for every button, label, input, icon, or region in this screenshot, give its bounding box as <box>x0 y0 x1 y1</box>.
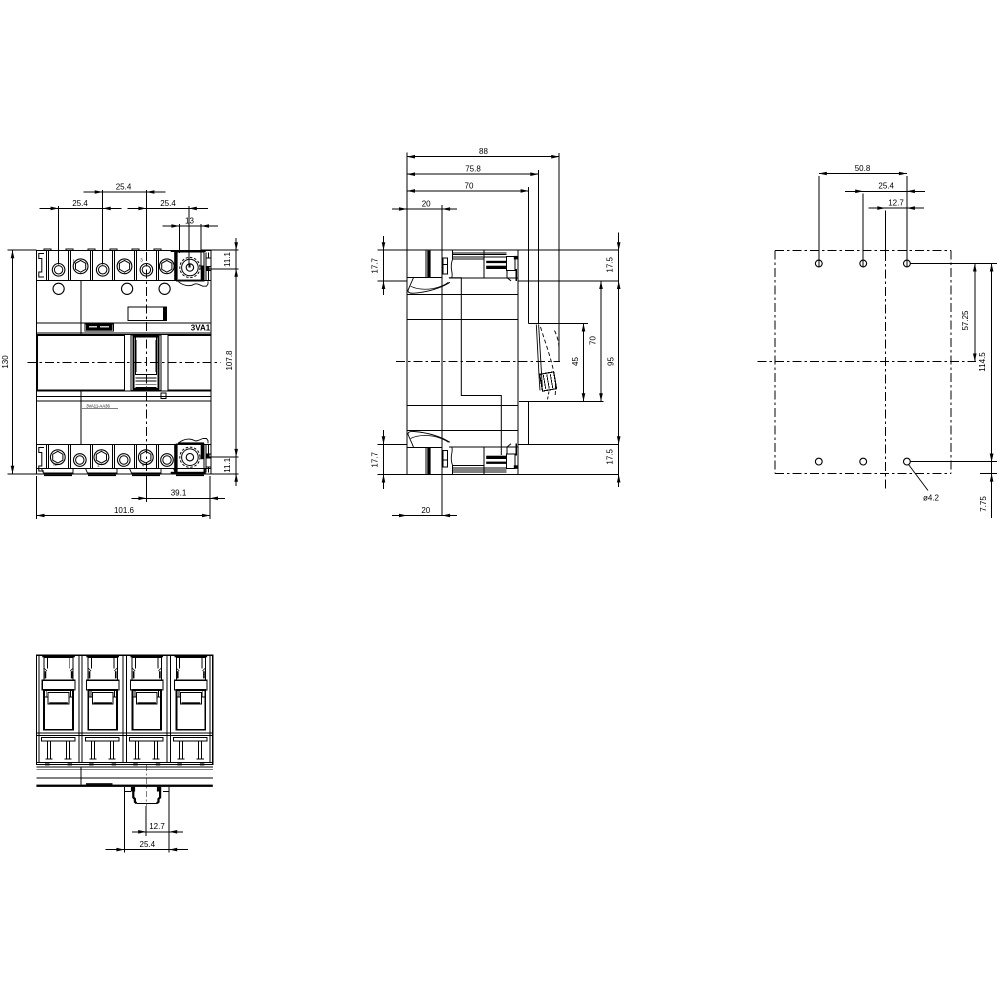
svg-text:13: 13 <box>185 216 194 225</box>
svg-text:130: 130 <box>1 355 10 369</box>
svg-text:25.4: 25.4 <box>160 199 176 208</box>
svg-text:39.1: 39.1 <box>171 489 187 498</box>
svg-text:45: 45 <box>571 357 580 366</box>
svg-text:70: 70 <box>465 181 474 190</box>
svg-text:11.1: 11.1 <box>223 457 232 473</box>
svg-text:17.5: 17.5 <box>606 256 615 272</box>
svg-text:75.8: 75.8 <box>465 165 481 174</box>
svg-text:20: 20 <box>422 199 431 208</box>
svg-text:70: 70 <box>588 336 597 345</box>
svg-text:3VA11-AA36: 3VA11-AA36 <box>86 403 110 408</box>
svg-text:25.4: 25.4 <box>878 182 894 191</box>
svg-text:17.7: 17.7 <box>370 257 379 273</box>
svg-text:50.8: 50.8 <box>855 164 871 173</box>
svg-text:17.7: 17.7 <box>370 451 379 467</box>
svg-text:7.75: 7.75 <box>979 496 988 512</box>
svg-text:3VA1: 3VA1 <box>191 324 211 333</box>
svg-text:57.25: 57.25 <box>961 310 970 331</box>
svg-text:20: 20 <box>421 506 430 515</box>
svg-text:25.4: 25.4 <box>116 182 132 191</box>
svg-text:114.5: 114.5 <box>978 352 987 372</box>
svg-text:101.6: 101.6 <box>114 506 135 515</box>
svg-text:107.8: 107.8 <box>225 350 234 371</box>
svg-text:88: 88 <box>479 147 488 156</box>
svg-text:25.4: 25.4 <box>72 199 88 208</box>
svg-text:95: 95 <box>606 357 615 366</box>
svg-text:ø4.2: ø4.2 <box>923 494 940 503</box>
svg-text:12.7: 12.7 <box>888 199 904 208</box>
svg-text:11.1: 11.1 <box>223 251 232 267</box>
svg-text:17.5: 17.5 <box>606 448 615 464</box>
svg-text:12.7: 12.7 <box>149 822 165 831</box>
svg-text:25.4: 25.4 <box>140 840 156 849</box>
svg-text:N: N <box>53 462 56 467</box>
